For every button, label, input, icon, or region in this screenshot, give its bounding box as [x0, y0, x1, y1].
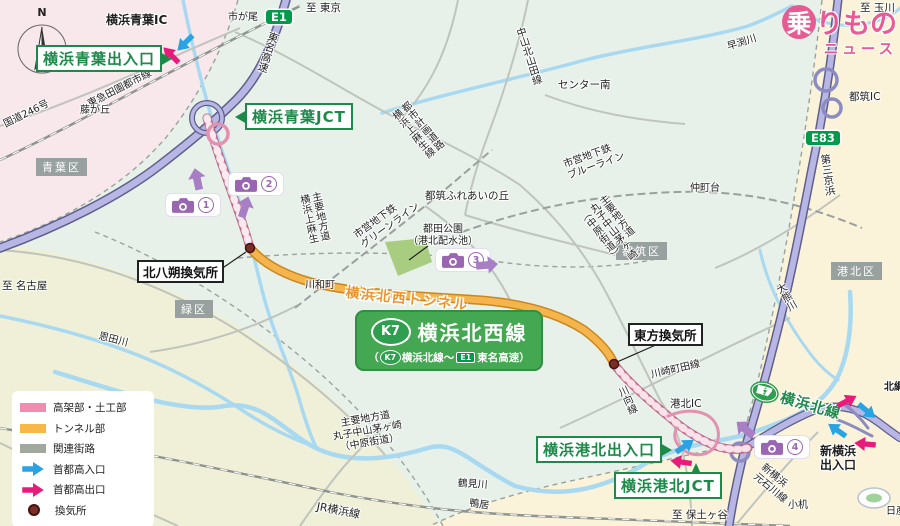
exit-arrow-icon: [21, 483, 45, 497]
vent-dot-icon: [28, 504, 40, 516]
camera-marker-4: 4: [755, 436, 809, 458]
direction-to-hodogaya: 至 保土ヶ谷: [672, 509, 728, 522]
aoba-jct-label: 横浜青葉JCT: [245, 103, 353, 130]
camera-icon: [235, 177, 257, 192]
map-canvas: N 乗りもの ニュース E1 E83 横浜青葉出入口 横浜青葉JCT 横浜港北出…: [0, 0, 900, 526]
place-center-minami: センター南: [558, 79, 611, 92]
legend-item-tunnel: トンネル部: [20, 421, 146, 436]
pointer-left: [235, 110, 247, 124]
street-swatch: [20, 444, 46, 453]
legend-item-street: 関連街路: [20, 441, 146, 456]
direction-to-tokyo: 至 東京: [306, 2, 341, 15]
k7-route-marker-icon: K7: [371, 318, 411, 346]
kitahassaku-vent-label: 北八朔換気所: [137, 260, 224, 283]
place-yokohama-aoba-ic: 横浜青葉IC: [106, 13, 167, 27]
logo-circle: 乗: [782, 5, 816, 39]
ward-kohoku: 港北区: [831, 262, 882, 280]
exit-arrow-icon: [853, 436, 876, 452]
legend-item-entrance: 首都高入口: [20, 462, 146, 477]
place-fujigaoka: 藤が丘: [80, 105, 110, 117]
camera-marker-2: 2: [229, 173, 283, 195]
e83-route-badge: E83: [806, 131, 840, 145]
camera-number: 2: [261, 176, 277, 192]
nissan-stadium-icon: [858, 488, 890, 508]
e1-route-marker-small-icon: E1: [456, 352, 475, 363]
place-shin-yokohama-exit: 新横浜 出入口: [820, 444, 856, 473]
camera-icon: [172, 198, 194, 213]
norimono-news-logo: 乗りもの ニュース: [782, 2, 897, 59]
pointer-up: [691, 463, 701, 474]
tunnel-swatch: [20, 424, 46, 433]
route-title: 横浜北西線: [418, 317, 528, 346]
map-legend: 高架部・土工部 トンネル部 関連街路 首都高入口 首都高出口 換気所: [12, 391, 154, 526]
place-kitatsunashima: 北綱: [884, 382, 900, 394]
yokohama-hokusei-line-badge: K7 横浜北西線 （ K7 横浜北線〜 E1 東名高速）: [355, 310, 543, 371]
place-kozukue: 小机: [788, 500, 808, 512]
exit-arrow-icon: [669, 454, 693, 471]
legend-item-exit: 首都高出口: [20, 482, 146, 497]
aoba-exit-label: 横浜青葉出入口: [36, 45, 162, 72]
place-kohoku-ic: 港北IC: [670, 398, 701, 411]
place-kawawacho: 川和町: [305, 280, 335, 292]
pointer-right: [660, 443, 672, 457]
k7-route-marker-small-icon: K7: [380, 350, 401, 365]
ward-aoba: 青葉区: [36, 158, 87, 176]
place-fureai: 都筑ふれあいの丘: [425, 190, 509, 203]
compass-n-label: N: [12, 6, 72, 19]
e1-route-badge: E1: [266, 10, 292, 24]
legend-item-vent: 換気所: [20, 503, 146, 518]
direction-to-nagoya: 至 名古屋: [2, 280, 47, 293]
camera-number: 1: [198, 197, 214, 213]
direction-arrow-icon: [475, 255, 498, 275]
place-nakamachidai: 仲町台: [690, 183, 720, 195]
place-ichigao: 市が尾: [228, 12, 258, 24]
pointer-right: [160, 52, 172, 66]
kohoku-exit-label: 横浜港北出入口: [536, 436, 662, 463]
entrance-arrow-icon: [21, 462, 45, 476]
legend-item-elevated: 高架部・土工部: [20, 400, 146, 415]
ward-midori: 緑区: [175, 300, 213, 318]
place-tsuzuki-ic: 都筑IC: [849, 91, 880, 104]
camera-icon: [442, 253, 464, 268]
camera-number: 4: [787, 439, 803, 455]
elevated-swatch: [20, 403, 46, 412]
place-nissan-stadium: 日産: [886, 506, 900, 518]
kohoku-jct-label: 横浜港北JCT: [614, 472, 722, 499]
camera-icon: [761, 440, 783, 455]
river-tsurumi: 鶴見川: [457, 478, 488, 492]
place-tsuda-park: 都田公園 （港北配水池）: [408, 224, 478, 248]
toho-vent-label: 東方換気所: [628, 323, 703, 346]
camera-marker-1: 1: [166, 194, 220, 216]
place-kamoi: 鴨居: [468, 498, 489, 513]
